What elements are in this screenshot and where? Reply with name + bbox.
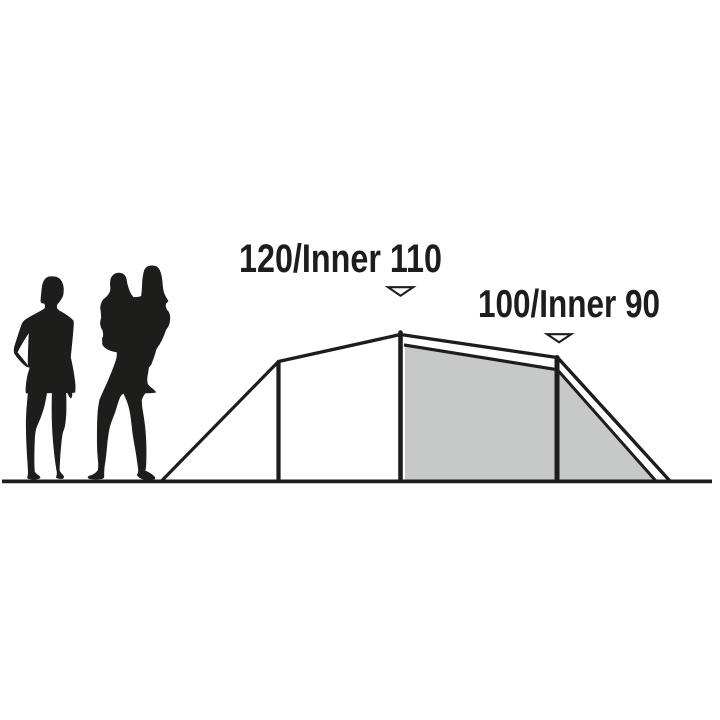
svg-text:120/Inner 110: 120/Inner 110: [239, 237, 442, 281]
svg-text:100/Inner 90: 100/Inner 90: [478, 283, 660, 326]
